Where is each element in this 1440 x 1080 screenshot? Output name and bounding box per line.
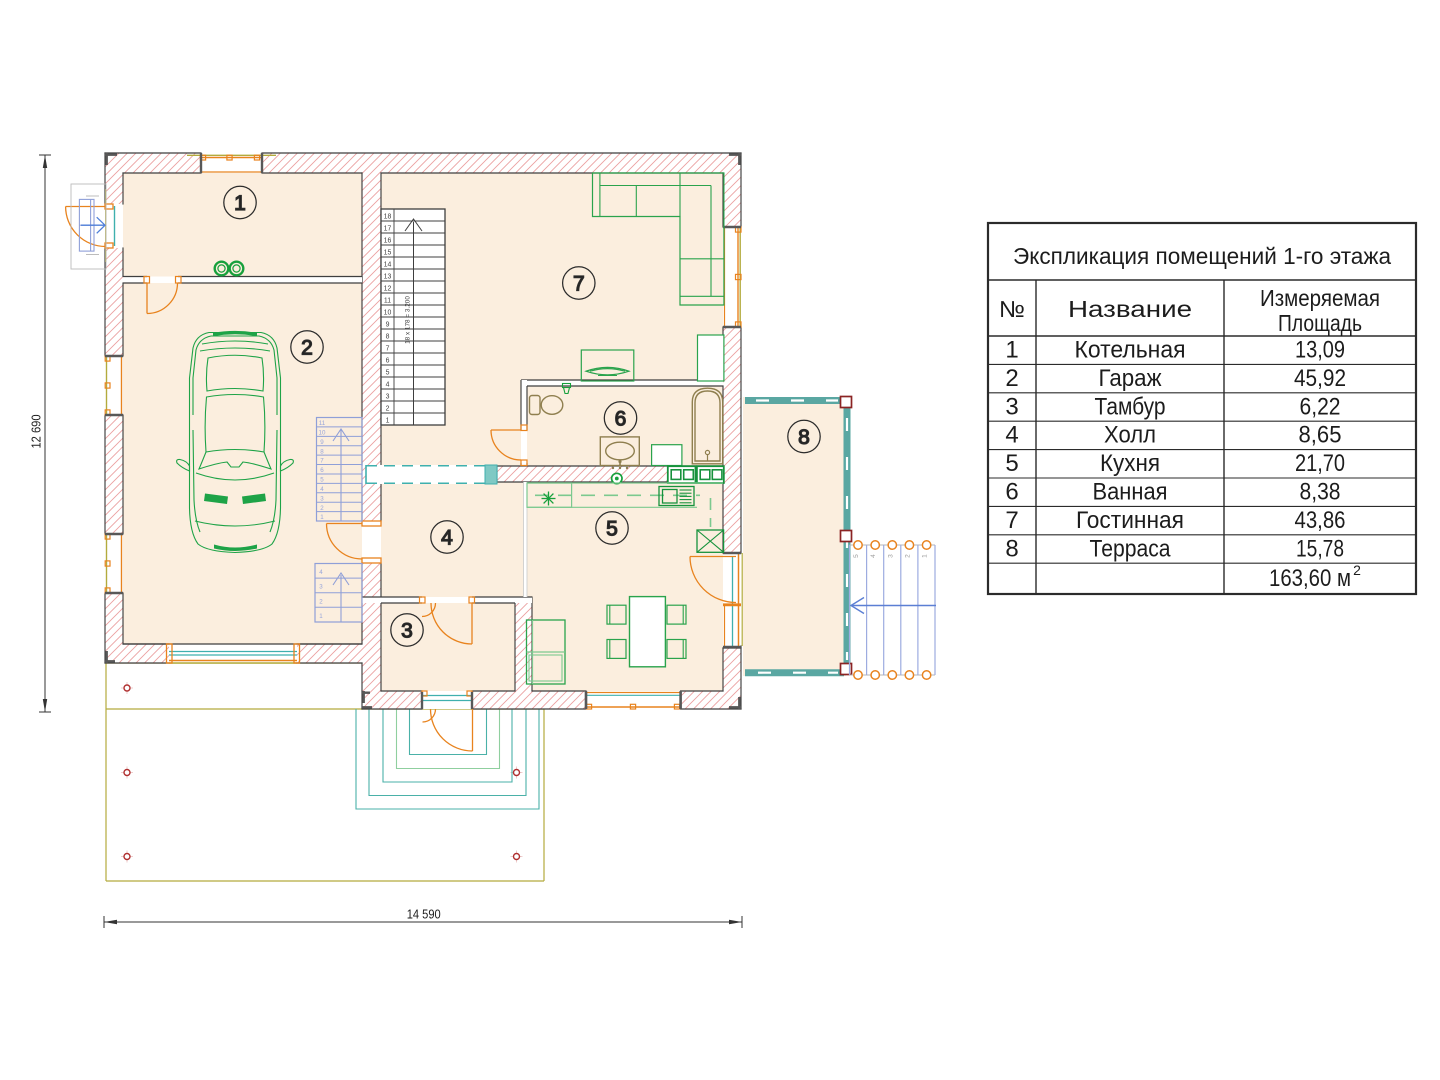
svg-text:1: 1 [1005, 337, 1018, 364]
svg-text:11: 11 [319, 420, 326, 427]
svg-text:Кухня: Кухня [1100, 450, 1160, 477]
svg-text:2: 2 [301, 337, 313, 360]
svg-text:17: 17 [384, 225, 392, 232]
svg-text:7: 7 [573, 273, 585, 296]
svg-text:Тамбур: Тамбур [1095, 393, 1166, 420]
svg-text:1: 1 [922, 554, 929, 558]
svg-text:5: 5 [1005, 450, 1018, 477]
svg-text:Терраса: Терраса [1090, 535, 1172, 562]
svg-text:1: 1 [320, 514, 324, 521]
svg-text:10: 10 [319, 430, 326, 437]
svg-text:7: 7 [1005, 507, 1018, 534]
svg-text:5: 5 [606, 518, 618, 541]
svg-text:2: 2 [386, 405, 390, 412]
svg-text:12 690: 12 690 [29, 415, 44, 449]
svg-text:9: 9 [386, 321, 390, 328]
svg-text:4: 4 [386, 381, 390, 388]
svg-text:4: 4 [319, 569, 323, 576]
svg-text:21,70: 21,70 [1295, 450, 1345, 477]
svg-text:8: 8 [320, 448, 324, 455]
svg-text:1: 1 [319, 613, 323, 620]
svg-text:14 590: 14 590 [407, 907, 441, 922]
svg-text:6: 6 [386, 357, 390, 364]
svg-text:Гараж: Гараж [1099, 365, 1162, 392]
svg-text:8: 8 [798, 426, 810, 449]
svg-text:7: 7 [386, 345, 390, 352]
svg-text:4: 4 [441, 527, 453, 550]
svg-text:Ванная: Ванная [1093, 479, 1168, 506]
svg-text:15: 15 [384, 249, 392, 256]
svg-text:6: 6 [615, 408, 627, 431]
svg-text:3: 3 [320, 495, 324, 502]
svg-text:5: 5 [320, 477, 324, 484]
svg-text:8,65: 8,65 [1299, 422, 1342, 449]
svg-text:2: 2 [1353, 562, 1361, 578]
svg-text:2: 2 [1005, 365, 1018, 392]
svg-text:6: 6 [1005, 479, 1018, 506]
svg-text:1: 1 [234, 192, 246, 215]
svg-text:2: 2 [904, 554, 911, 558]
svg-text:5: 5 [853, 554, 860, 558]
svg-text:Гостинная: Гостинная [1076, 507, 1184, 534]
svg-text:4: 4 [320, 486, 324, 493]
svg-text:Котельная: Котельная [1075, 337, 1186, 364]
svg-text:Название: Название [1068, 296, 1192, 322]
svg-text:3: 3 [319, 584, 323, 591]
svg-text:4: 4 [870, 554, 877, 558]
svg-text:12: 12 [384, 285, 392, 292]
svg-text:Площадь: Площадь [1278, 310, 1362, 336]
svg-text:7: 7 [320, 458, 324, 465]
svg-text:Измеряемая: Измеряемая [1260, 285, 1380, 311]
svg-text:163,60 м: 163,60 м [1269, 565, 1351, 592]
svg-text:2: 2 [320, 505, 324, 512]
svg-text:2: 2 [319, 598, 323, 605]
svg-text:8,38: 8,38 [1300, 479, 1341, 506]
svg-text:14: 14 [384, 261, 392, 268]
svg-text:3: 3 [887, 554, 894, 558]
svg-text:6,22: 6,22 [1300, 393, 1341, 420]
svg-text:4: 4 [1005, 422, 1018, 449]
svg-text:18: 18 [384, 213, 392, 220]
svg-text:№: № [999, 296, 1025, 322]
svg-text:9: 9 [320, 439, 324, 446]
svg-text:1: 1 [386, 417, 390, 424]
svg-text:8: 8 [386, 333, 390, 340]
svg-text:10: 10 [384, 309, 392, 316]
svg-text:16: 16 [384, 237, 392, 244]
svg-text:8: 8 [1005, 535, 1018, 562]
svg-text:6: 6 [320, 467, 324, 474]
svg-text:3: 3 [386, 393, 390, 400]
svg-text:11: 11 [384, 297, 391, 304]
svg-text:43,86: 43,86 [1295, 507, 1346, 534]
svg-text:3: 3 [1005, 393, 1018, 420]
svg-text:15,78: 15,78 [1296, 535, 1344, 562]
svg-text:Экспликация помещений 1-го эта: Экспликация помещений 1-го этажа [1013, 243, 1391, 269]
svg-text:45,92: 45,92 [1294, 365, 1346, 392]
svg-text:18 x 178 = 3.200: 18 x 178 = 3.200 [405, 296, 412, 344]
svg-text:3: 3 [401, 620, 413, 643]
svg-text:5: 5 [386, 369, 390, 376]
svg-text:Холл: Холл [1104, 422, 1156, 449]
svg-text:13,09: 13,09 [1295, 337, 1345, 364]
svg-text:13: 13 [384, 273, 392, 280]
